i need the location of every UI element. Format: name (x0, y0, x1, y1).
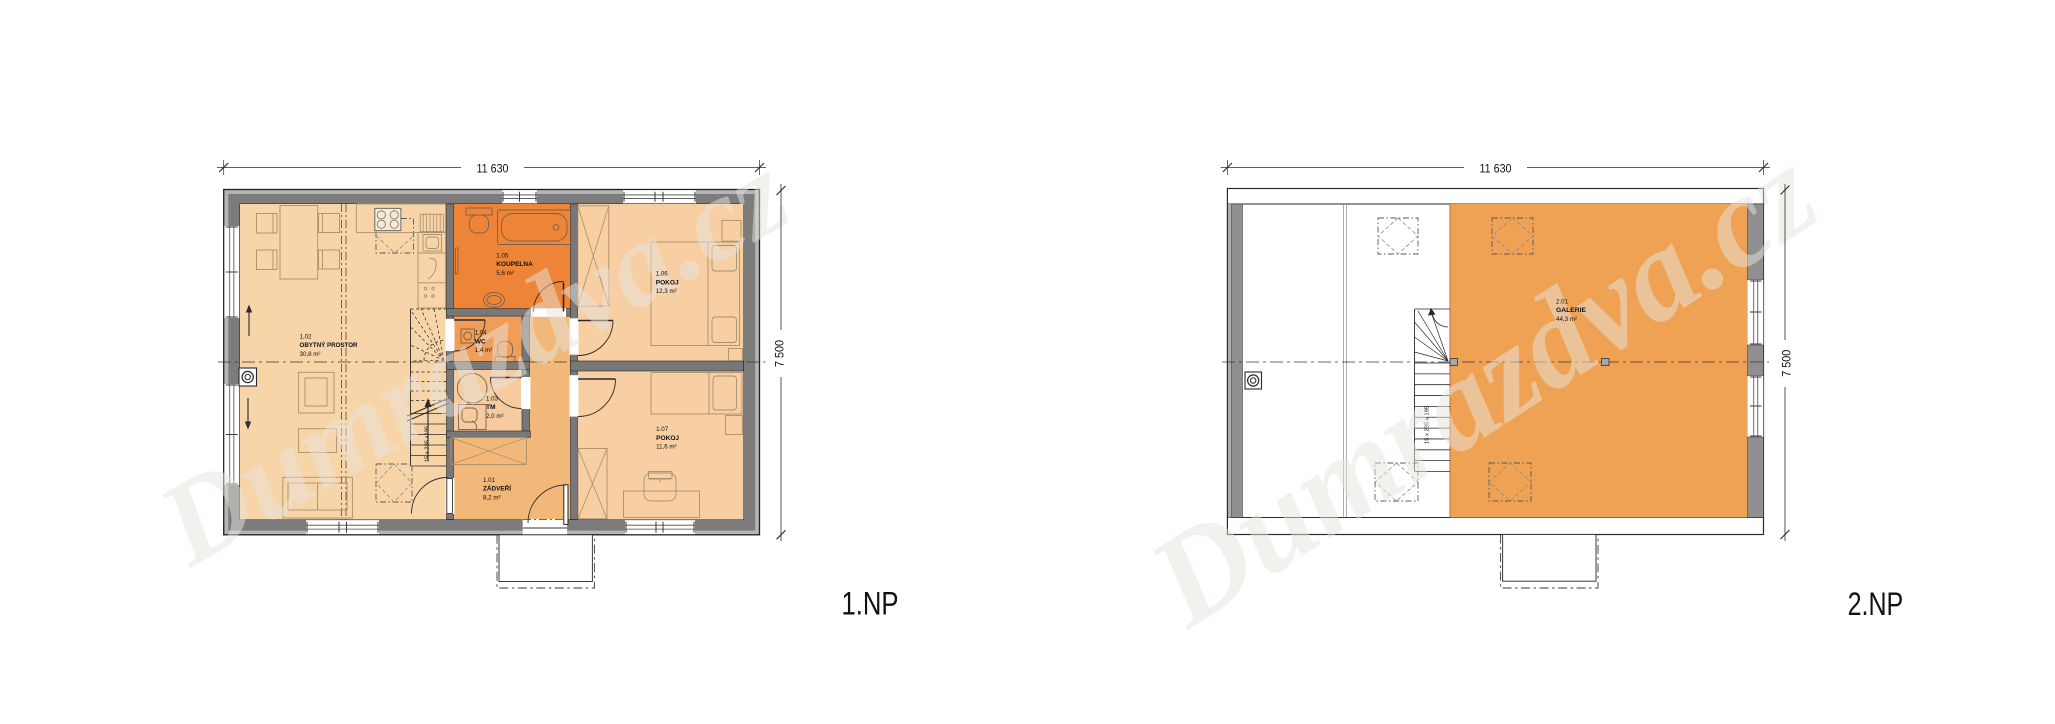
svg-text:TM: TM (486, 404, 496, 411)
svg-text:1.06: 1.06 (656, 271, 669, 278)
svg-text:2.NP: 2.NP (1848, 586, 1904, 622)
svg-text:1.02: 1.02 (300, 334, 313, 341)
svg-text:2,0 m²: 2,0 m² (486, 413, 504, 420)
svg-text:11 630: 11 630 (477, 162, 509, 176)
svg-text:1.05: 1.05 (496, 252, 509, 259)
svg-text:12,3 m²: 12,3 m² (656, 288, 677, 295)
svg-text:1.07: 1.07 (656, 426, 669, 433)
svg-text:8,2 m²: 8,2 m² (483, 495, 501, 502)
svg-text:GALERIE: GALERIE (1556, 307, 1587, 314)
svg-text:POKOJ: POKOJ (656, 435, 679, 442)
svg-text:1.01: 1.01 (483, 477, 496, 484)
svg-text:11,6 m²: 11,6 m² (656, 444, 677, 451)
svg-text:7 500: 7 500 (1780, 350, 1794, 377)
svg-text:2.01: 2.01 (1556, 299, 1569, 306)
svg-text:POKOJ: POKOJ (656, 279, 679, 286)
svg-text:1,4 m²: 1,4 m² (475, 347, 493, 354)
svg-text:1.03: 1.03 (486, 396, 499, 403)
svg-text:11 630: 11 630 (1480, 162, 1512, 176)
svg-text:1.04: 1.04 (475, 330, 488, 337)
svg-text:KOUPELNA: KOUPELNA (496, 261, 533, 268)
svg-text:44,3 m²: 44,3 m² (1556, 316, 1577, 323)
svg-text:OBYTNÝ PROSTOR: OBYTNÝ PROSTOR (300, 340, 358, 349)
svg-text:ZÁDVEŘÍ: ZÁDVEŘÍ (483, 484, 511, 493)
svg-text:WC: WC (475, 338, 486, 345)
svg-text:5,6 m²: 5,6 m² (496, 270, 514, 277)
svg-text:1.NP: 1.NP (842, 586, 899, 622)
svg-text:30,8 m²: 30,8 m² (300, 351, 321, 358)
svg-text:7 500: 7 500 (773, 340, 787, 367)
